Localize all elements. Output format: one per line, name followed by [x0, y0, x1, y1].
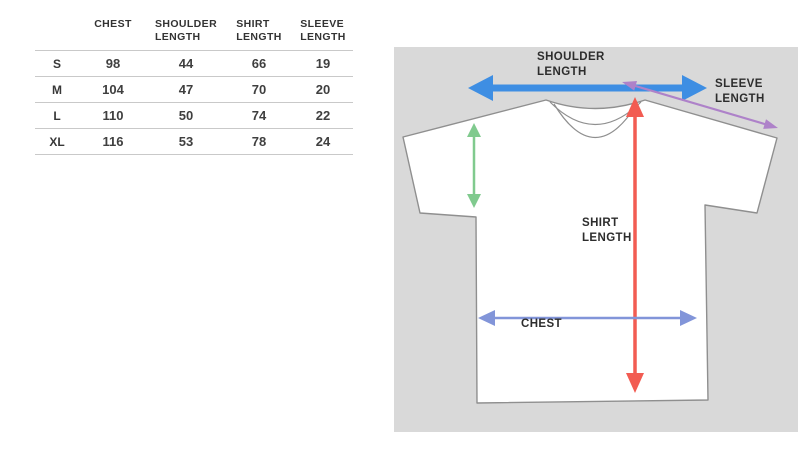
size-row-m: M 104 47 70 20 [35, 77, 353, 103]
cell-sleeve-length: 22 [293, 103, 353, 129]
cell-sleeve-length: 24 [293, 129, 353, 155]
size-label: S [35, 51, 79, 77]
cell-chest: 110 [79, 103, 147, 129]
cell-shirt-length: 78 [225, 129, 293, 155]
size-label: L [35, 103, 79, 129]
cell-shirt-length: 70 [225, 77, 293, 103]
size-chart-table: CHEST SHOULDER LENGTH SHIRT LENGTH SLEEV… [35, 16, 353, 155]
col-header-size [35, 16, 79, 51]
size-row-s: S 98 44 66 19 [35, 51, 353, 77]
cell-chest: 104 [79, 77, 147, 103]
chest-label: CHEST [521, 317, 562, 332]
cell-shirt-length: 66 [225, 51, 293, 77]
shoulder-length-label: SHOULDER LENGTH [537, 50, 605, 80]
size-row-xl: XL 116 53 78 24 [35, 129, 353, 155]
cell-shoulder-length: 50 [147, 103, 225, 129]
cell-chest: 116 [79, 129, 147, 155]
cell-shoulder-length: 47 [147, 77, 225, 103]
col-header-sleeve-length: SLEEVE LENGTH [293, 16, 353, 51]
size-row-l: L 110 50 74 22 [35, 103, 353, 129]
size-label: M [35, 77, 79, 103]
col-header-shirt-length: SHIRT LENGTH [225, 16, 293, 51]
shirt-length-label: SHIRT LENGTH [582, 216, 632, 246]
cell-chest: 98 [79, 51, 147, 77]
sleeve-length-label: SLEEVE LENGTH [715, 77, 765, 107]
tshirt-measurement-diagram: SHOULDER LENGTH SLEEVE LENGTH SHIRT LENG… [394, 47, 798, 432]
header-row: CHEST SHOULDER LENGTH SHIRT LENGTH SLEEV… [35, 16, 353, 51]
cell-sleeve-length: 19 [293, 51, 353, 77]
cell-shoulder-length: 44 [147, 51, 225, 77]
cell-shoulder-length: 53 [147, 129, 225, 155]
cell-sleeve-length: 20 [293, 77, 353, 103]
cell-shirt-length: 74 [225, 103, 293, 129]
page: CHEST SHOULDER LENGTH SHIRT LENGTH SLEEV… [0, 0, 805, 450]
size-label: XL [35, 129, 79, 155]
col-header-chest: CHEST [79, 16, 147, 51]
size-chart: CHEST SHOULDER LENGTH SHIRT LENGTH SLEEV… [35, 16, 353, 155]
col-header-shoulder-length: SHOULDER LENGTH [147, 16, 225, 51]
